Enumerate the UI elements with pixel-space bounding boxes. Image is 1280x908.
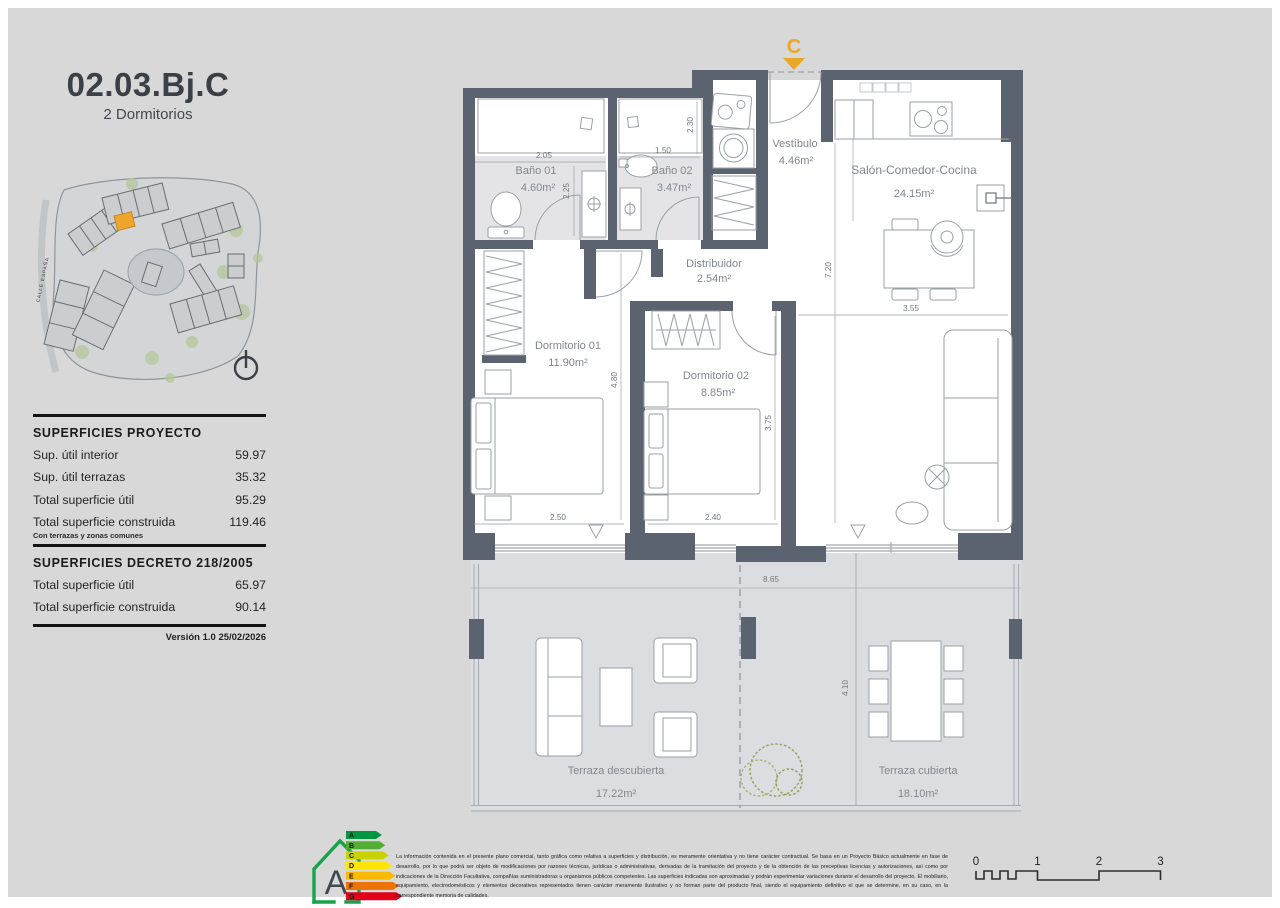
room-area-bano1: 4.60m² (521, 182, 556, 194)
room-label-vestibulo: Vestíbulo (772, 138, 817, 150)
nightstand-icon (485, 370, 511, 394)
unit-header: 02.03.Bj.C 2 Dormitorios (8, 66, 288, 123)
row-value: 35.32 (235, 470, 266, 484)
row-label: Total superficie útil (33, 493, 134, 507)
unit-subtitle: 2 Dormitorios (8, 106, 288, 123)
dim-bano1-width: 2.05 (536, 151, 552, 160)
entrance-marker: C (787, 36, 801, 58)
surfaces-decree-table: SUPERFICIES DECRETO 218/2005 Total super… (33, 544, 266, 643)
row-label: Sup. útil terrazas (33, 470, 125, 484)
washbasin-icon (582, 171, 606, 237)
table-row: Sup. útil interior 59.97 (33, 448, 266, 462)
floor-plan: C (456, 26, 1040, 826)
coffee-table-icon (600, 668, 632, 726)
room-label-dorm1: Dormitorio 01 (535, 340, 601, 352)
room-label-salon: Salón-Comedor-Cocina (851, 163, 977, 177)
row-label: Total superficie construida (33, 600, 175, 614)
room-area-dorm2: 8.85m² (701, 387, 736, 399)
entrance-arrow-icon (783, 58, 805, 70)
scale-tick: 3 (1157, 856, 1163, 868)
unit-title: 02.03.Bj.C (8, 66, 288, 104)
energy-scale-letter: F (349, 884, 354, 891)
scale-tick-labels: 0 1 2 3 (973, 856, 1164, 868)
energy-scale-letter: A (349, 833, 354, 840)
dim-bano2-width: 1.50 (655, 146, 671, 155)
scale-bar: 0 1 2 3 (960, 851, 1175, 893)
scale-tick: 0 (973, 856, 979, 868)
version-label: Versión 1.0 25/02/2026 (33, 632, 266, 643)
row-value: 95.29 (235, 493, 266, 507)
divider (33, 624, 266, 627)
dim-bano2-height: 2.30 (686, 117, 695, 133)
row-label: Total superficie útil (33, 578, 134, 592)
energy-scale-letter: E (349, 873, 354, 880)
table-row: Total superficie construida 119.46 (33, 515, 266, 529)
dim-salon-width: 3.55 (903, 304, 919, 313)
armchair-icon (654, 712, 697, 757)
toilet-icon (488, 192, 524, 238)
outdoor-sofa-icon (536, 638, 582, 756)
room-area-dorm1: 11.90m² (548, 357, 588, 369)
room-label-bano2: Baño 02 (652, 165, 693, 177)
site-plan: CALLE ESPAÑA (28, 168, 276, 402)
dim-dorm2-width: 2.40 (705, 513, 721, 522)
sofa-icon (944, 330, 1012, 530)
dim-terraza-width: 8.65 (763, 575, 779, 584)
side-table-icon (896, 502, 928, 524)
dim-bano1-height: 2.25 (562, 183, 571, 199)
scale-tick: 2 (1096, 856, 1102, 868)
room-label-terraza-descubierta: Terraza descubierta (568, 765, 665, 777)
row-value: 65.97 (235, 578, 266, 592)
divider (33, 414, 266, 417)
table-row: Total superficie construida 90.14 (33, 600, 266, 614)
energy-scale-letter: C (349, 853, 354, 860)
room-area-distribuidor: 2.54m² (697, 273, 732, 285)
table-row: Sup. útil terrazas 35.32 (33, 470, 266, 484)
room-label-dorm2: Dormitorio 02 (683, 370, 749, 382)
vanity-icon (620, 188, 641, 230)
bed-icon (471, 398, 603, 494)
energy-rating-letter: A (325, 864, 348, 902)
table-footnote: Con terrazas y zonas comunes (33, 531, 266, 540)
outdoor-dining-icon (869, 641, 963, 741)
row-value: 119.46 (229, 515, 266, 529)
room-label-bano1: Baño 01 (516, 165, 557, 177)
armchair-icon (654, 638, 697, 683)
divider (33, 544, 266, 547)
row-label: Sup. útil interior (33, 448, 118, 462)
washer-icon (713, 129, 754, 168)
room-area-terraza-cubierta: 18.10m² (898, 788, 939, 800)
room-area-salon: 24.15m² (894, 188, 935, 200)
dim-dorm2-height: 3.75 (764, 415, 773, 431)
scale-tick: 1 (1034, 856, 1040, 868)
room-area-terraza-descubierta: 17.22m² (596, 788, 637, 800)
table-row: Total superficie útil 65.97 (33, 578, 266, 592)
nightstand-icon (485, 496, 511, 520)
scale-bar-line (976, 871, 1161, 880)
energy-scale-letter: B (349, 843, 354, 850)
energy-scale-letter: G (349, 894, 355, 901)
sheet-background: 02.03.Bj.C 2 Dormitorios (8, 8, 1272, 897)
surfaces-project-title: SUPERFICIES PROYECTO (33, 426, 266, 440)
nightstand-icon (644, 495, 668, 520)
legal-disclaimer: La información contenida en el presente … (396, 853, 948, 902)
row-value: 90.14 (235, 600, 266, 614)
energy-rating-label: A A B C D E F G (306, 828, 408, 908)
dim-dorm1-height: 4.80 (610, 372, 619, 388)
row-value: 59.97 (235, 448, 266, 462)
room-label-distribuidor: Distribuidor (686, 258, 742, 270)
row-label: Total superficie construida (33, 515, 175, 529)
nightstand-icon (644, 382, 668, 407)
table-row: Total superficie útil 95.29 (33, 493, 266, 507)
dim-salon-height: 7.20 (824, 262, 833, 278)
bed-icon (644, 409, 760, 494)
energy-scale-letter: D (349, 863, 354, 870)
surfaces-project-table: SUPERFICIES PROYECTO Sup. útil interior … (33, 414, 266, 540)
hob-icon (910, 102, 952, 136)
dim-terraza-height: 4.10 (841, 680, 850, 696)
room-label-terraza-cubierta: Terraza cubierta (879, 765, 959, 777)
kitchen-cabinet-icon (835, 100, 873, 139)
utility-sink-icon (711, 93, 752, 129)
room-area-bano2: 3.47m² (657, 182, 692, 194)
surfaces-decree-title: SUPERFICIES DECRETO 218/2005 (33, 556, 266, 570)
dim-dorm1-width: 2.50 (550, 513, 566, 522)
room-area-vestibulo: 4.46m² (779, 155, 814, 167)
energy-arrows: A B C D E F G (346, 831, 402, 901)
